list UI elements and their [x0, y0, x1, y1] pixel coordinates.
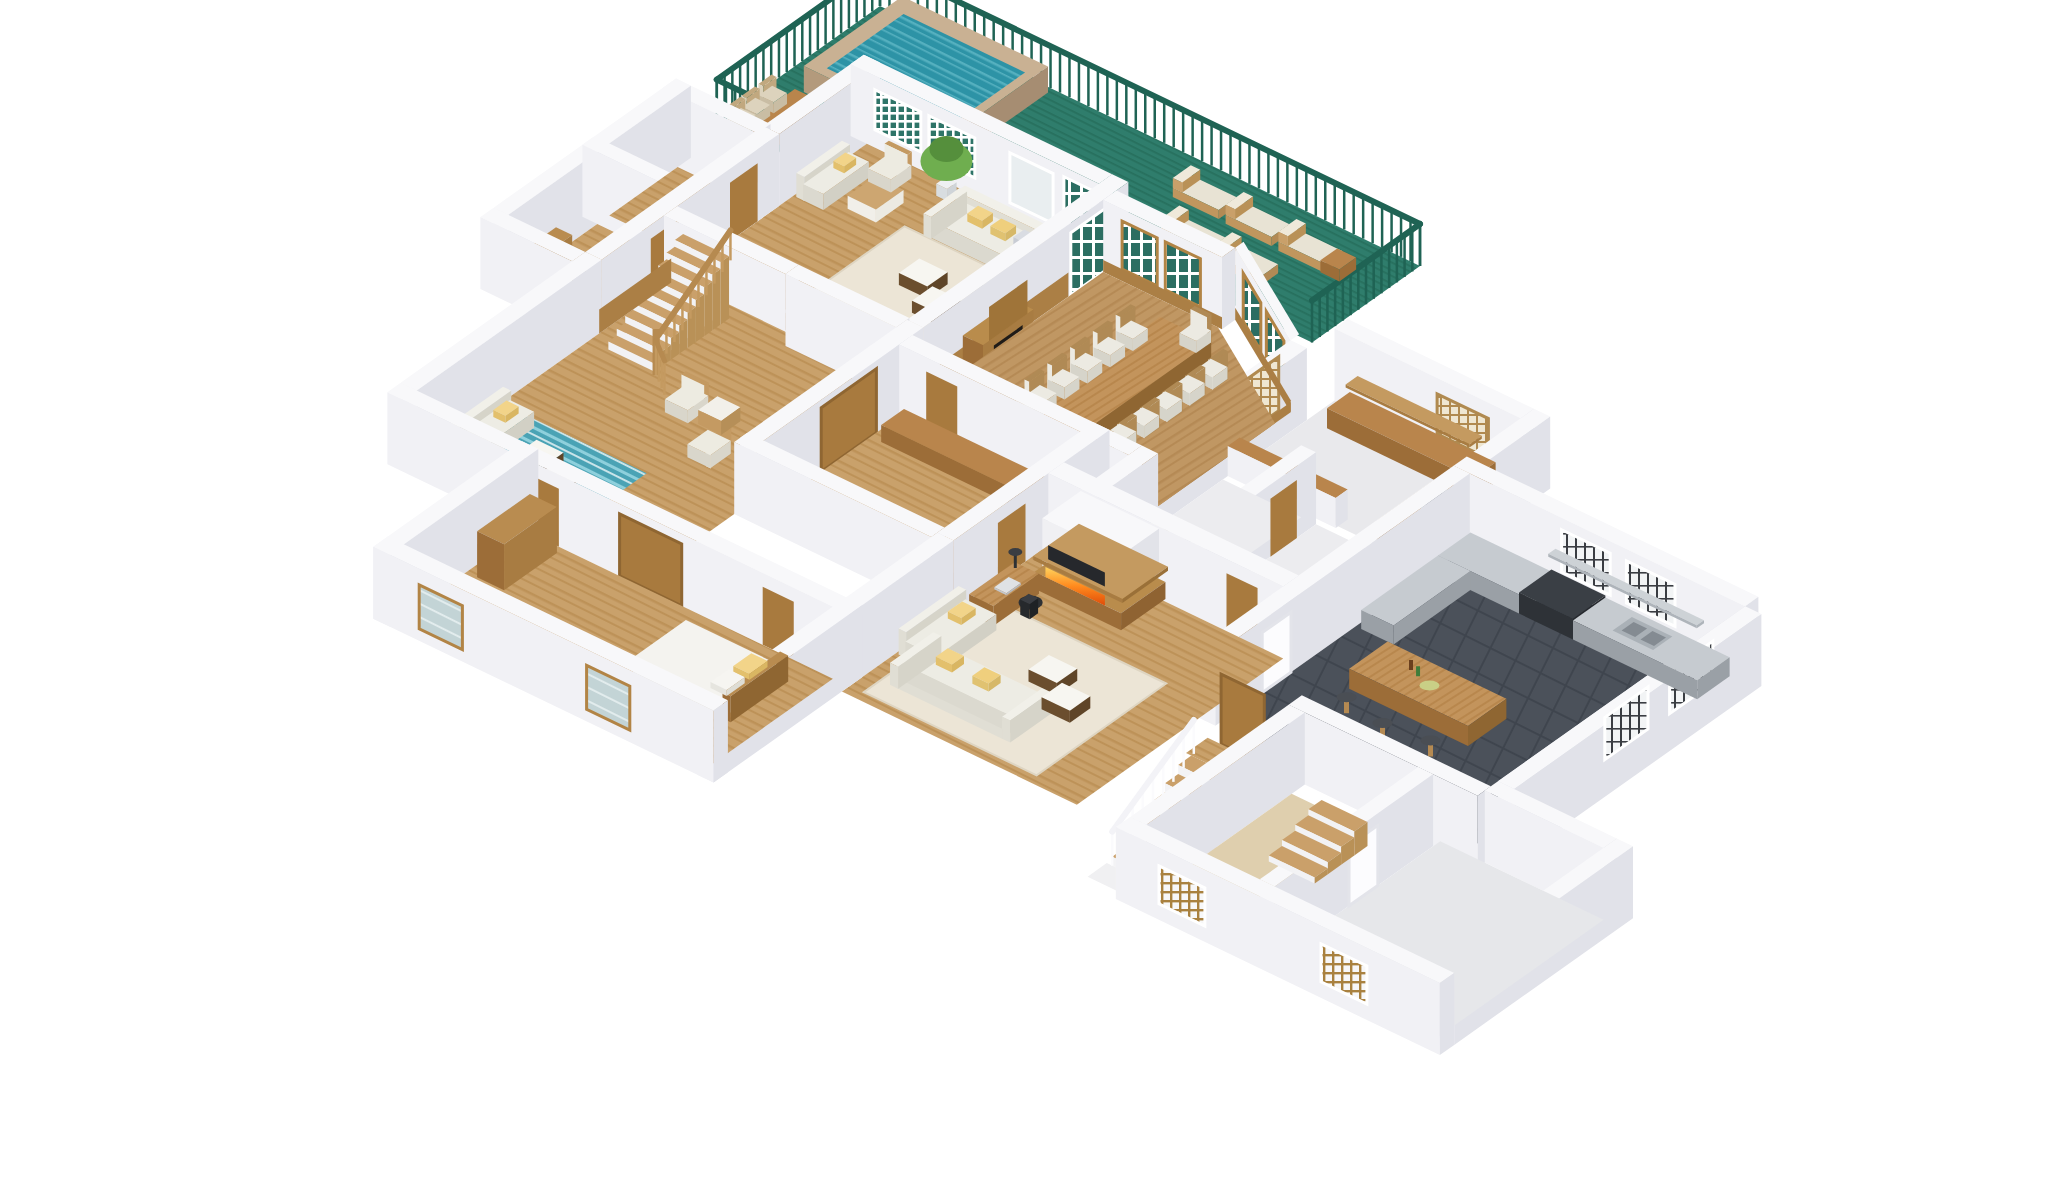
- scene-root: [373, 0, 1761, 1055]
- stair-step: [696, 294, 704, 342]
- stair-step: [688, 307, 696, 348]
- plant: [929, 136, 963, 162]
- desk-lamp-shade: [1008, 548, 1022, 556]
- sofa-arm: [890, 663, 898, 689]
- bowl: [1419, 680, 1439, 690]
- wall: [1222, 248, 1235, 329]
- floor-plan-canvas: [0, 0, 2048, 1194]
- wall: [1440, 973, 1454, 1055]
- stool: [1373, 718, 1393, 728]
- wall: [714, 700, 728, 782]
- stool: [1337, 692, 1357, 702]
- floor-plan-3d-render: [0, 0, 2048, 1194]
- sofa-arm: [924, 213, 932, 239]
- sofa-arm: [1002, 717, 1010, 743]
- stool: [1421, 736, 1441, 746]
